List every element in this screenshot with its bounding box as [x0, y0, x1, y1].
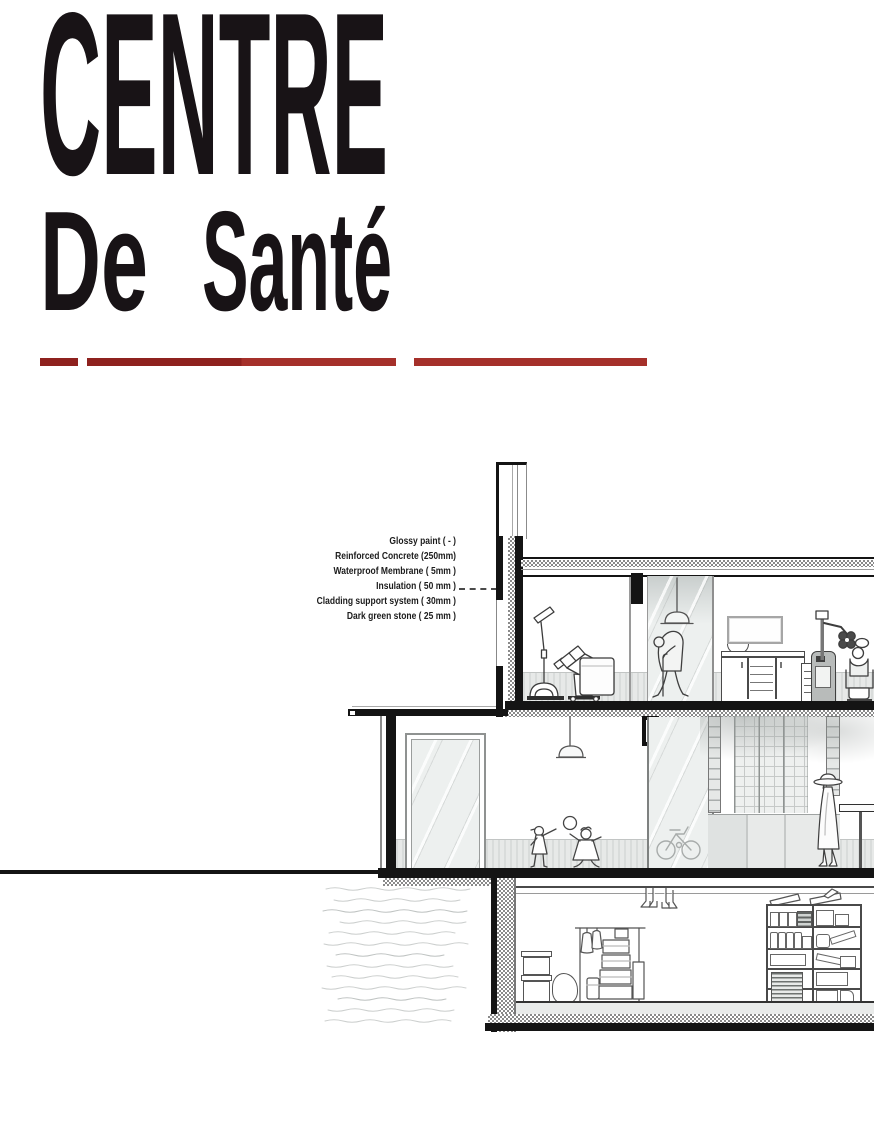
box	[835, 914, 849, 926]
drawer-line	[750, 682, 773, 683]
storage-shelf-unit	[766, 904, 862, 1003]
exam-lamp-and-chair	[524, 600, 634, 702]
long-box	[816, 972, 848, 986]
clothes-rack-and-boxes	[575, 916, 647, 1006]
glass-block-column	[708, 716, 721, 813]
grade-line	[0, 870, 381, 874]
divider-dash-1	[40, 358, 78, 366]
low-wall-panel	[708, 815, 746, 871]
elderly-person-with-cane	[647, 576, 711, 702]
children-playing-ball	[524, 810, 616, 868]
box	[523, 957, 550, 975]
bottle	[778, 932, 786, 949]
poster-page: CENTRE De Santé Glossy paint ( - ) Reinf…	[0, 0, 874, 1143]
divider-dash-3	[414, 358, 647, 366]
bottle	[786, 932, 794, 949]
glass-block-wall	[734, 716, 808, 813]
wall-window-band	[496, 600, 504, 666]
wall-mirror	[727, 616, 783, 644]
drawer-line	[750, 690, 773, 691]
roof-slab-membrane-line	[521, 569, 874, 570]
upper-door-pocket	[631, 573, 643, 604]
low-wall-joint	[784, 815, 786, 871]
ground-wall-outer-line	[380, 716, 382, 871]
divider-dash-2	[87, 358, 396, 366]
stacked-boxes	[521, 951, 552, 1004]
pendant-lamp	[556, 716, 586, 760]
shelf-divider	[812, 906, 814, 1001]
foundation-wall-core	[497, 878, 514, 1032]
jar	[788, 912, 797, 927]
callout-leader-line	[459, 588, 497, 590]
reception-desk-leg	[859, 812, 862, 869]
canopy-top-line	[352, 706, 496, 707]
title-line2-word1: De	[40, 182, 148, 330]
box	[816, 910, 834, 926]
parapet	[496, 462, 527, 539]
canopy-end-cap	[350, 711, 355, 715]
entry-glass-door	[405, 733, 486, 875]
door-handle	[780, 662, 782, 668]
foundation-slab	[485, 1023, 874, 1031]
hanging-waders	[638, 888, 680, 918]
material-label-cladding-support: Cladding support system ( 30mm )	[261, 594, 457, 609]
jar	[770, 912, 779, 927]
roof-slab-top-line	[521, 557, 874, 559]
bicycle-silhouette	[651, 800, 707, 866]
small-box	[802, 936, 812, 949]
cabinet-divider	[775, 658, 777, 699]
material-label-insulation: Insulation ( 50 mm )	[261, 579, 457, 594]
plank	[830, 930, 857, 945]
earth-hatching	[320, 883, 492, 1033]
jar	[779, 912, 788, 927]
door-glazing	[411, 739, 480, 869]
stacked-trays	[771, 972, 803, 1003]
title-block: CENTRE De Santé	[36, 0, 466, 330]
reception-desk-top	[839, 804, 874, 812]
tray	[770, 954, 806, 966]
ground-floor-slab	[378, 868, 874, 878]
dental-chair-and-patient	[814, 610, 874, 702]
title-line2-word2: Santé	[202, 182, 392, 330]
material-label-membrane: Waterproof Membrane ( 5mm )	[261, 564, 457, 579]
countertop-line	[722, 656, 804, 658]
box	[840, 956, 856, 968]
material-label-glossy-paint: Glossy paint ( - )	[261, 534, 457, 549]
roof-slab-screed	[521, 560, 874, 567]
material-label-stone: Dark green stone ( 25 mm )	[261, 609, 457, 624]
bottle	[770, 932, 778, 949]
low-wall-joint	[746, 815, 748, 871]
bottle	[794, 932, 802, 949]
cabinet-divider	[747, 658, 749, 699]
entrance-canopy	[348, 709, 508, 716]
ground-left-wall	[386, 716, 396, 872]
foundation-slab-bedding	[488, 1014, 874, 1023]
basement-floor-screed	[516, 1003, 874, 1014]
mid-floor-slab	[505, 701, 874, 710]
inner-glass-door	[647, 717, 714, 868]
material-label-concrete: Reinforced Concrete (250mm)	[261, 549, 457, 564]
woman-with-hat	[811, 773, 849, 869]
kettle	[816, 934, 830, 948]
wall-cladding-upper	[496, 536, 503, 600]
door-handle	[741, 662, 743, 668]
drawer-line	[750, 666, 773, 667]
striped-box	[797, 911, 812, 927]
sink-counter-cabinet	[721, 651, 805, 703]
shelf-line	[768, 968, 860, 970]
material-callout-list: Glossy paint ( - ) Reinforced Concrete (…	[261, 534, 457, 624]
drawer-line	[750, 674, 773, 675]
